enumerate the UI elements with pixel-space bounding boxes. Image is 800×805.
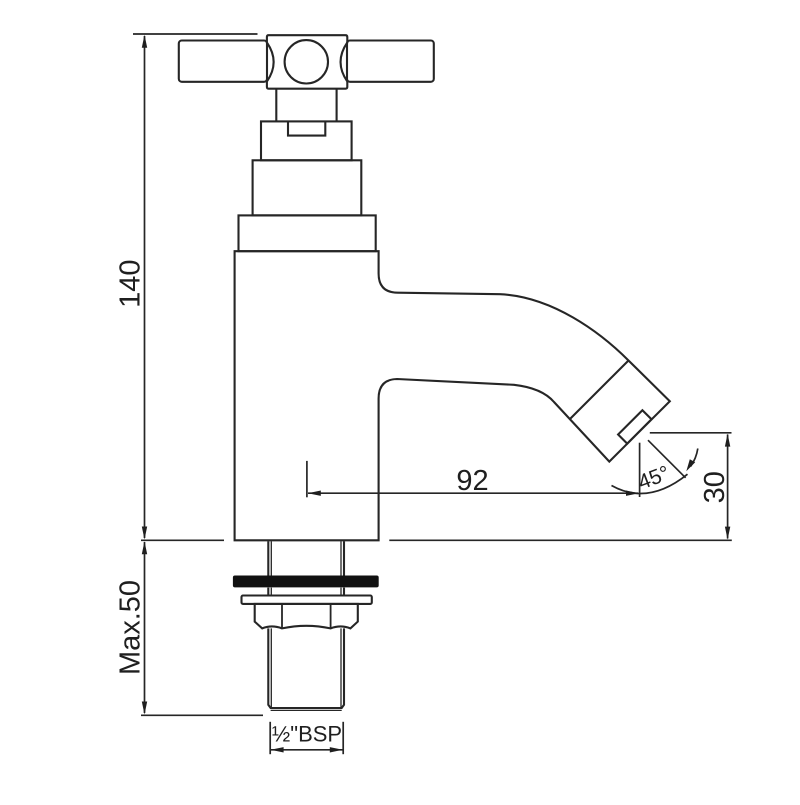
svg-text:Max.50: Max.50 xyxy=(115,580,147,675)
svg-text:30: 30 xyxy=(699,471,731,503)
svg-text:½"BSP: ½"BSP xyxy=(272,722,342,747)
svg-text:92: 92 xyxy=(456,465,488,497)
svg-text:140: 140 xyxy=(115,260,147,308)
